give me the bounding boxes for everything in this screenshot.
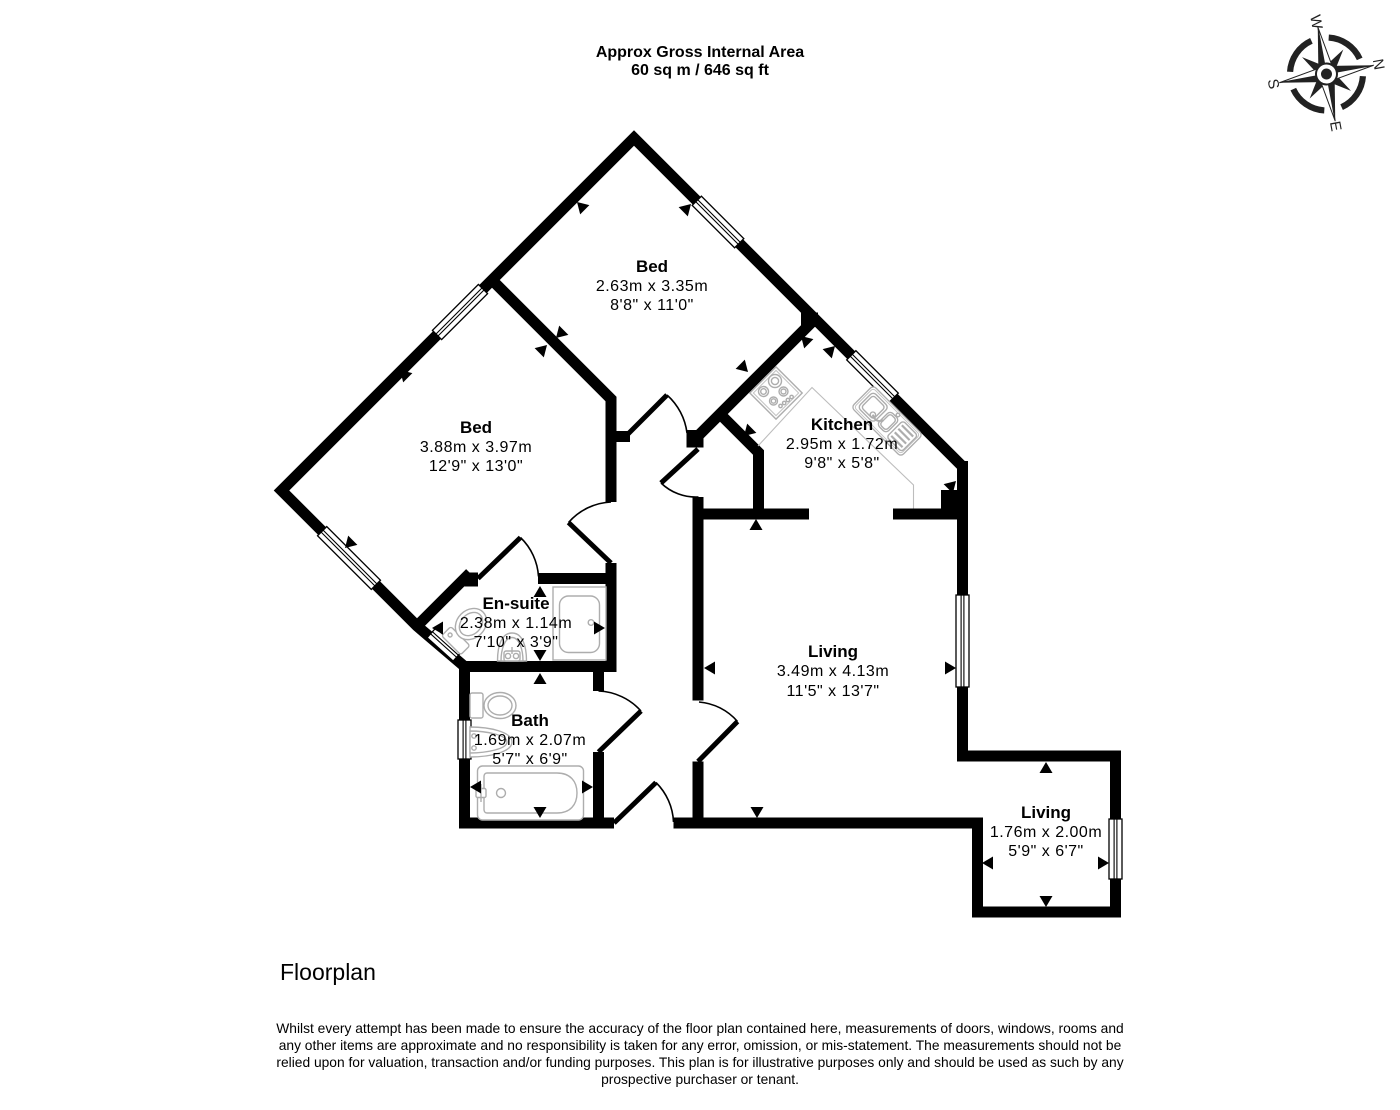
svg-text:3.49m x 4.13m: 3.49m x 4.13m	[777, 663, 889, 680]
svg-text:Bed: Bed	[460, 418, 492, 437]
svg-text:12'9" x 13'0": 12'9" x 13'0"	[429, 458, 523, 475]
svg-text:2.38m x 1.14m: 2.38m x 1.14m	[460, 615, 572, 632]
svg-text:Living: Living	[808, 642, 858, 661]
svg-text:Kitchen: Kitchen	[811, 415, 873, 434]
svg-text:relied upon for valuation, tra: relied upon for valuation, transaction a…	[276, 1055, 1123, 1070]
svg-text:60 sq m / 646 sq ft: 60 sq m / 646 sq ft	[631, 62, 770, 79]
svg-text:prospective purchaser or tenan: prospective purchaser or tenant.	[601, 1072, 799, 1087]
svg-text:Approx Gross Internal Area: Approx Gross Internal Area	[596, 44, 804, 61]
svg-text:9'8" x 5'8": 9'8" x 5'8"	[804, 455, 879, 472]
svg-text:8'8" x 11'0": 8'8" x 11'0"	[610, 297, 694, 314]
svg-text:5'7" x 6'9": 5'7" x 6'9"	[492, 751, 567, 768]
svg-text:Bed: Bed	[636, 257, 668, 276]
svg-text:En-suite: En-suite	[482, 594, 549, 613]
svg-text:7'10" x 3'9": 7'10" x 3'9"	[474, 634, 559, 651]
svg-text:1.76m x 2.00m: 1.76m x 2.00m	[990, 824, 1102, 841]
svg-text:11'5" x 13'7": 11'5" x 13'7"	[786, 683, 879, 700]
svg-text:1.69m x 2.07m: 1.69m x 2.07m	[474, 732, 586, 749]
svg-text:Floorplan: Floorplan	[280, 959, 376, 985]
svg-text:Living: Living	[1021, 803, 1071, 822]
svg-text:any other items are approximat: any other items are approximate and no r…	[279, 1038, 1122, 1053]
svg-text:Bath: Bath	[511, 711, 549, 730]
svg-text:5'9" x 6'7": 5'9" x 6'7"	[1008, 843, 1083, 860]
svg-text:2.63m x 3.35m: 2.63m x 3.35m	[596, 278, 708, 295]
svg-text:2.95m x 1.72m: 2.95m x 1.72m	[786, 436, 898, 453]
svg-text:3.88m x 3.97m: 3.88m x 3.97m	[420, 439, 532, 456]
svg-text:Whilst every attempt has been: Whilst every attempt has been made to en…	[276, 1021, 1123, 1036]
